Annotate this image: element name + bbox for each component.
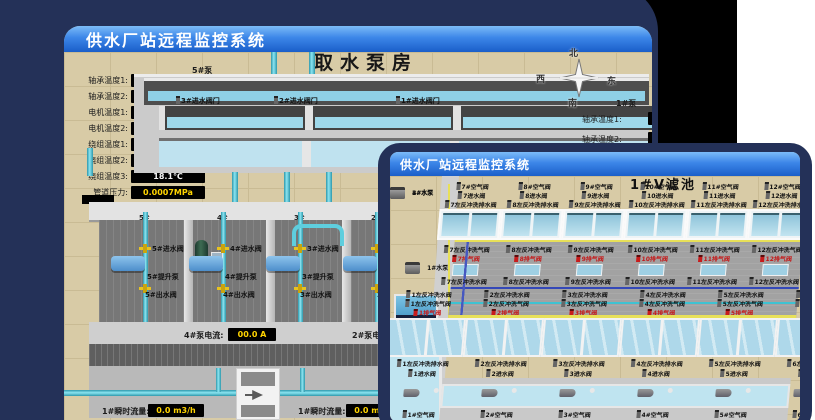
air-valve-label: 12#空气阀 xyxy=(769,184,800,191)
filter-cell[interactable] xyxy=(623,209,688,240)
valve-icon xyxy=(480,410,485,418)
front-window-titlebar: 供水厂站远程监控系统 xyxy=(390,152,800,176)
inlet-valve-label: 3进水阀 xyxy=(569,371,592,378)
drain-valve[interactable]: 5左反冲洗排水阀 xyxy=(696,359,775,368)
backwash-gas-valve[interactable]: 11左反冲洗气阀 xyxy=(684,245,747,254)
inlet-valve-label: 8进水阀 xyxy=(525,193,548,200)
vent-valve-label: 7排气阀 xyxy=(457,256,480,263)
flow-right-label: 1#瞬时流量: xyxy=(298,406,345,417)
inlet-valve-label: 5进水阀 xyxy=(725,371,748,378)
channel-pump xyxy=(771,388,800,404)
drain-valve-label: 11左反冲洗排水阀 xyxy=(696,202,747,209)
valve-icon xyxy=(702,182,707,190)
valve-icon xyxy=(764,182,769,190)
inlet-valve[interactable]: 2进水阀 xyxy=(461,369,540,378)
trough-icon xyxy=(514,264,541,276)
intake-valve-label: 2#进水阀门 xyxy=(279,97,318,105)
air-valve-label: 6#空气阀 xyxy=(797,412,800,419)
backwash-gas-valve[interactable]: 3左反冲洗气阀 xyxy=(545,299,624,308)
air-valve[interactable]: 9#空气阀 xyxy=(565,182,628,191)
air-valve[interactable]: 7#空气阀 xyxy=(441,182,504,191)
blue-pipe-line xyxy=(451,287,799,289)
wash-valve-row-bottom: 1左反冲洗水阀2左反冲洗水阀3左反冲洗水阀4左反冲洗水阀5左反冲洗水阀6左反冲洗… xyxy=(390,290,800,299)
flow-left-label: 1#瞬时流量: xyxy=(102,406,149,417)
vent-valve-label: 9排气阀 xyxy=(581,256,604,263)
pump-icon xyxy=(559,389,576,397)
backwash-pump[interactable]: 4#水泵 xyxy=(390,182,433,198)
inlet-valve[interactable]: 11进水阀 xyxy=(688,191,751,200)
air-valve[interactable]: 11#空气阀 xyxy=(689,182,752,191)
bay-pump-label: 3#提升泵 xyxy=(302,272,334,282)
bay-outlet-label: 5#出水阀 xyxy=(145,290,177,300)
backwash-water-valve[interactable]: 10左反冲洗水阀 xyxy=(619,277,682,286)
air-valve-label: 10#空气阀 xyxy=(645,184,677,191)
water xyxy=(470,213,498,236)
gas-valve-label: 11左反冲洗气阀 xyxy=(695,247,740,254)
air-valve[interactable]: 6#空气阀 xyxy=(769,410,800,419)
backwash-water-valve[interactable]: 5左反冲洗水阀 xyxy=(702,290,781,299)
backwash-gas-valve[interactable]: 2左反冲洗气阀 xyxy=(467,299,546,308)
water xyxy=(315,117,451,128)
drain-valve-row-bottom: 1左反冲洗排水阀2左反冲洗排水阀3左反冲洗排水阀4左反冲洗排水阀5左反冲洗排水阀… xyxy=(390,359,800,368)
filter-grid: 7#空气阀8#空气阀9#空气阀10#空气阀11#空气阀12#空气阀 7进水阀8进… xyxy=(439,182,800,420)
gas-valve-label: 8左反冲洗气阀 xyxy=(511,247,552,254)
scene-heading: 取水泵房 xyxy=(314,48,418,75)
channel-pump xyxy=(390,388,460,404)
trough xyxy=(620,264,683,276)
vent-valve[interactable]: 11排气阀 xyxy=(683,254,746,263)
channel-pump-row xyxy=(390,388,800,404)
pump-icon xyxy=(637,389,654,397)
pipe-stub xyxy=(326,172,332,206)
channel-pump xyxy=(693,388,772,404)
trough xyxy=(558,264,621,276)
water xyxy=(565,213,593,236)
air-valve[interactable]: 2#空气阀 xyxy=(457,410,536,419)
pump4-current-label: 4#泵电流: xyxy=(184,330,223,341)
valve-icon xyxy=(456,182,461,190)
backwash-gas-valve[interactable]: 5左反冲洗气阀 xyxy=(701,299,780,308)
intake-channel xyxy=(455,106,652,130)
filter-cells-bottom xyxy=(390,318,800,357)
vent-valve-label: 8排气阀 xyxy=(519,256,542,263)
wash-valve-label: 5左反冲洗水阀 xyxy=(723,292,764,299)
valve-icon xyxy=(558,410,563,418)
air-valve[interactable]: 10#空气阀 xyxy=(627,182,690,191)
drain-valve-label: 7左反冲洗排水阀 xyxy=(450,202,497,209)
compass-north: 北 xyxy=(569,46,578,59)
air-valve-label: 2#空气阀 xyxy=(485,412,513,419)
bay-outlet-label: 4#出水阀 xyxy=(223,290,255,300)
valve-icon xyxy=(796,290,800,298)
pump-label: 4#水泵 xyxy=(412,190,433,197)
backwash-water-valve[interactable]: 7左反冲洗水阀 xyxy=(433,277,496,286)
sensor-label: 绕组温度2: xyxy=(66,155,131,166)
inlet-valve[interactable]: 12进水阀 xyxy=(750,191,800,200)
inlet-valve-label: 12进水阀 xyxy=(771,193,798,200)
front-window-title: 供水厂站远程监控系统 xyxy=(400,156,530,173)
vent-valve[interactable]: 10排气阀 xyxy=(621,254,684,263)
air-valve-label: 3#空气阀 xyxy=(563,412,591,419)
gas-valve-label: 12左反冲洗气阀 xyxy=(757,247,800,254)
device-icon xyxy=(245,390,263,400)
pump-icon xyxy=(715,389,732,397)
backwash-water-valve[interactable]: 1左反冲洗水阀 xyxy=(390,290,469,299)
inlet-valve-label: 10进水阀 xyxy=(647,193,674,200)
drain-valve-label: 12左反冲洗排水阀 xyxy=(758,202,800,209)
gas-valve-row-bottom: 1左反冲洗气阀2左反冲洗气阀3左反冲洗气阀4左反冲洗气阀5左反冲洗气阀6左反冲洗… xyxy=(390,299,800,308)
filter-cell[interactable] xyxy=(619,318,700,357)
bay-inlet-label: 4#进水阀 xyxy=(230,244,262,254)
wash-valve-label: 2左反冲洗水阀 xyxy=(489,292,530,299)
valve-icon xyxy=(274,96,278,104)
drain-valve-label: 5左反冲洗排水阀 xyxy=(714,361,761,368)
edge-sensor-label: 轴承温度1: xyxy=(582,114,622,125)
channel-pump xyxy=(615,388,694,404)
wash-valve-label: 9左反冲洗水阀 xyxy=(570,279,611,286)
filter-window[interactable]: 供水厂站远程监控系统 1#V滤池 1#水泵 2#水泵 xyxy=(378,143,812,420)
drain-valve-label: 8左反冲洗排水阀 xyxy=(512,202,559,209)
inlet-valve-row-top: 7进水阀8进水阀9进水阀10进水阀11进水阀12进水阀 xyxy=(440,191,800,200)
water xyxy=(751,213,779,236)
pump-icon xyxy=(481,389,498,397)
inlet-valve[interactable]: 10进水阀 xyxy=(626,191,689,200)
trough-icon xyxy=(700,264,727,276)
filter-cell[interactable] xyxy=(685,209,750,240)
channel-pump xyxy=(459,388,538,404)
sensor-label: 轴承温度1: xyxy=(66,75,131,86)
filter-cell[interactable] xyxy=(390,318,466,357)
pipe-stub xyxy=(232,172,238,206)
back-window-title: 供水厂站远程监控系统 xyxy=(86,27,266,51)
filter-cell[interactable] xyxy=(437,209,502,240)
water xyxy=(532,213,560,236)
inlet-valve[interactable]: 9进水阀 xyxy=(564,191,627,200)
backwash-gas-valve[interactable]: 4左反冲洗气阀 xyxy=(623,299,702,308)
filter-cell[interactable] xyxy=(541,318,622,357)
edge-sensor-value xyxy=(648,112,652,125)
intake-valve[interactable]: 2#进水阀门 xyxy=(274,96,318,106)
air-valve-row-top: 7#空气阀8#空气阀9#空气阀10#空气阀11#空气阀12#空气阀 xyxy=(441,182,800,191)
air-valve-label: 1#空气阀 xyxy=(407,412,435,419)
drain-valve-label: 9左反冲洗排水阀 xyxy=(574,202,621,209)
float-icon xyxy=(745,388,750,393)
filter-cell[interactable] xyxy=(499,209,564,240)
backwash-gas-valve[interactable]: 1左反冲洗气阀 xyxy=(390,299,468,308)
device-panel xyxy=(241,372,275,386)
trough xyxy=(682,264,745,276)
compass-east: 东 xyxy=(607,74,616,87)
inlet-valve-icon[interactable] xyxy=(217,244,229,253)
bay-inlet-label: 5#进水阀 xyxy=(152,244,184,254)
vent-valve-label: 10排气阀 xyxy=(641,256,668,263)
intake-valve[interactable]: 1#进水阀门 xyxy=(396,96,440,106)
valve-icon xyxy=(792,410,797,418)
backwash-water-valve[interactable]: 11左反冲洗水阀 xyxy=(681,277,744,286)
channel-pump xyxy=(537,388,616,404)
drain-valve[interactable]: 10左反冲洗排水阀 xyxy=(626,200,689,209)
intake-valve-label: 1#进水阀门 xyxy=(401,97,440,105)
drain-valve[interactable]: 12左反冲洗排水阀 xyxy=(750,200,800,209)
air-valve-row-bottom: 1#空气阀2#空气阀3#空气阀4#空气阀5#空气阀6#空气阀 xyxy=(390,410,800,419)
backwash-water-valve[interactable]: 9左反冲洗水阀 xyxy=(557,277,620,286)
drain-valve-label: 6左反冲洗排水阀 xyxy=(792,361,800,368)
air-valve[interactable]: 4#空气阀 xyxy=(613,410,692,419)
intake-channel xyxy=(159,106,311,130)
gas-valve-label: 7左反冲洗气阀 xyxy=(449,247,490,254)
drain-valve[interactable]: 11左反冲洗排水阀 xyxy=(688,200,751,209)
filter-screen: 供水厂站远程监控系统 1#V滤池 1#水泵 2#水泵 xyxy=(390,152,800,420)
water xyxy=(167,117,303,128)
inlet-valve[interactable]: 8进水阀 xyxy=(502,191,565,200)
compass-west: 西 xyxy=(536,72,545,85)
wash-valve-label: 3左反冲洗水阀 xyxy=(567,292,608,299)
pump1-group-label: 1#泵 xyxy=(616,98,636,109)
air-valve[interactable]: 5#空气阀 xyxy=(691,410,770,419)
drain-valve[interactable]: 8左反冲洗排水阀 xyxy=(502,200,565,209)
water xyxy=(503,213,531,236)
backwash-water-valve[interactable]: 4左反冲洗水阀 xyxy=(624,290,703,299)
gas-valve-label: 10左反冲洗气阀 xyxy=(633,247,678,254)
pump-icon xyxy=(405,262,420,274)
drain-valve[interactable]: 2左反冲洗排水阀 xyxy=(462,359,541,368)
sensor-label: 电机温度1: xyxy=(66,107,131,118)
vent-valve-label: 11排气阀 xyxy=(703,256,730,263)
backwash-water-valve[interactable]: 2左反冲洗水阀 xyxy=(468,290,547,299)
bay-outlet-label: 3#出水阀 xyxy=(300,290,332,300)
backwash-water-valve[interactable]: 6左反冲洗水阀 xyxy=(780,290,800,299)
pump-icon[interactable] xyxy=(343,256,377,271)
vent-valve[interactable]: 12排气阀 xyxy=(745,254,800,263)
inlet-valve-label: 1进水阀 xyxy=(413,371,436,378)
inlet-valve[interactable]: 7进水阀 xyxy=(440,191,503,200)
bay-pump-label: 4#提升泵 xyxy=(225,272,257,282)
air-valve[interactable]: 12#空气阀 xyxy=(751,182,800,191)
backwash-water-valve[interactable]: 8左反冲洗水阀 xyxy=(495,277,558,286)
filter-cell[interactable] xyxy=(775,318,800,357)
water xyxy=(718,213,746,236)
wash-valve-label: 7左反冲洗水阀 xyxy=(446,279,487,286)
trough-icon xyxy=(762,264,789,276)
pipe-stub xyxy=(216,368,221,392)
valve-icon xyxy=(798,369,800,377)
vent-valve-label: 1排气阀 xyxy=(419,310,442,317)
pump-bay: 3# 3#进水阀 3#提升泵 3#出水阀 xyxy=(264,212,342,322)
air-valve-label: 4#空气阀 xyxy=(641,412,669,419)
backwash-gas-valve[interactable]: 9左反冲洗气阀 xyxy=(560,245,623,254)
inlet-valve-label: 9进水阀 xyxy=(587,193,610,200)
inlet-valve-label: 11进水阀 xyxy=(709,193,736,200)
pump-bay: 5# 5#进水阀 5#提升泵 5#出水阀 xyxy=(109,212,187,322)
drain-valve-label: 1左反冲洗排水阀 xyxy=(402,361,449,368)
gas-valve-label: 2左反冲洗气阀 xyxy=(488,301,529,308)
water xyxy=(441,213,469,236)
compass-south: 南 xyxy=(568,96,577,109)
backwash-gas-valve[interactable]: 6左反冲洗气阀 xyxy=(779,299,800,308)
inlet-valve-icon[interactable] xyxy=(294,244,306,253)
air-valve[interactable]: 3#空气阀 xyxy=(535,410,614,419)
inlet-valve-label: 2进水阀 xyxy=(491,371,514,378)
drain-valve[interactable]: 3左反冲洗排水阀 xyxy=(540,359,619,368)
inlet-valve-icon[interactable] xyxy=(139,244,151,253)
sensor-label: 轴承温度2: xyxy=(66,91,131,102)
valve-icon xyxy=(176,96,180,104)
trough-icon xyxy=(576,264,603,276)
inlet-valve[interactable]: 6进水阀 xyxy=(773,369,800,378)
filter-cell[interactable] xyxy=(463,318,544,357)
sensor-label: 绕组温度1: xyxy=(66,139,131,150)
intake-valve-label: 3#进水阀门 xyxy=(181,97,220,105)
drain-valve-label: 2左反冲洗排水阀 xyxy=(480,361,527,368)
trough-row xyxy=(434,264,800,276)
pump-bay: 4# 4#进水阀 4#提升泵 4#出水阀 xyxy=(187,212,265,322)
flow-left-value: 0.0 m3/h xyxy=(148,404,204,417)
flow-meter-device[interactable] xyxy=(236,368,280,420)
pump-icon[interactable] xyxy=(266,256,300,271)
backwash-water-valve[interactable]: 3左反冲洗水阀 xyxy=(546,290,625,299)
air-valve-label: 5#空气阀 xyxy=(719,412,747,419)
inlet-valve-label: 4进水阀 xyxy=(647,371,670,378)
drain-valve-row-top: 7左反冲洗排水阀8左反冲洗排水阀9左反冲洗排水阀10左反冲洗排水阀11左反冲洗排… xyxy=(440,200,800,209)
wash-valve-label: 8左反冲洗水阀 xyxy=(508,279,549,286)
filter-cell[interactable] xyxy=(697,318,778,357)
inlet-valve-label: 7进水阀 xyxy=(463,193,486,200)
float-icon xyxy=(433,388,438,393)
wash-valve-label: 4左反冲洗水阀 xyxy=(645,292,686,299)
float-icon xyxy=(589,388,594,393)
backwash-gas-valve[interactable]: 10左反冲洗气阀 xyxy=(622,245,685,254)
compass-icon xyxy=(559,58,599,98)
pump-icon xyxy=(390,187,405,199)
valve-icon xyxy=(396,96,400,104)
drain-valve[interactable]: 4左反冲洗排水阀 xyxy=(618,359,697,368)
valve-icon xyxy=(714,410,719,418)
drain-valve[interactable]: 1左反冲洗排水阀 xyxy=(390,359,463,368)
backwash-gas-valve[interactable]: 8左反冲洗气阀 xyxy=(498,245,561,254)
vent-valve-row-top: 7排气阀8排气阀9排气阀10排气阀11排气阀12排气阀 xyxy=(435,254,800,263)
air-valve[interactable]: 1#空气阀 xyxy=(390,410,458,419)
valve-icon xyxy=(640,182,645,190)
valve-icon xyxy=(518,182,523,190)
drain-valve[interactable]: 6左反冲洗排水阀 xyxy=(774,359,800,368)
drain-valve-label: 10左反冲洗排水阀 xyxy=(634,202,685,209)
inlet-valve[interactable]: 3进水阀 xyxy=(539,369,618,378)
wash-valve-label: 12左反冲洗水阀 xyxy=(754,279,799,286)
pump-icon[interactable] xyxy=(189,256,223,271)
water xyxy=(689,213,717,236)
trough-icon xyxy=(638,264,665,276)
backwash-water-valve[interactable]: 12左反冲洗水阀 xyxy=(743,277,800,286)
sensor-label: 绕组温度3: xyxy=(66,171,131,182)
filter-cell[interactable] xyxy=(561,209,626,240)
sensor-value: 0.0007MPa xyxy=(131,186,205,199)
wash-valve-label: 10左反冲洗水阀 xyxy=(630,279,675,286)
water xyxy=(463,117,652,128)
backwash-gas-valve[interactable]: 12左反冲洗气阀 xyxy=(746,245,800,254)
gas-valve-label: 1左反冲洗气阀 xyxy=(410,301,451,308)
float-icon xyxy=(511,388,516,393)
filter-cells-top xyxy=(437,209,800,240)
valve-icon xyxy=(402,410,407,418)
air-valve-label: 7#空气阀 xyxy=(461,184,489,191)
drain-valve[interactable]: 7左反冲洗排水阀 xyxy=(440,200,503,209)
wash-valve-label: 1左反冲洗水阀 xyxy=(411,292,452,299)
pump-icon xyxy=(793,389,800,397)
drain-valve-label: 4左反冲洗排水阀 xyxy=(636,361,683,368)
wash-valve-label: 11左反冲洗水阀 xyxy=(692,279,737,286)
sensor-label: 电机温度2: xyxy=(66,123,131,134)
basin-divider xyxy=(302,141,311,167)
trough xyxy=(496,264,559,276)
inlet-valve-row-bottom: 1进水阀2进水阀3进水阀4进水阀5进水阀6进水阀 xyxy=(390,369,800,378)
gas-valve-label: 9左反冲洗气阀 xyxy=(573,247,614,254)
air-valve-label: 11#空气阀 xyxy=(707,184,739,191)
drain-valve-label: 3左反冲洗排水阀 xyxy=(558,361,605,368)
valve-icon xyxy=(636,410,641,418)
water xyxy=(594,213,622,236)
valve-icon xyxy=(580,182,585,190)
filter-cell[interactable] xyxy=(747,209,800,240)
drain-valve[interactable]: 9左反冲洗排水阀 xyxy=(564,200,627,209)
intake-valve[interactable]: 3#进水阀门 xyxy=(176,96,220,106)
wash-valve-row-top: 7左反冲洗水阀8左反冲洗水阀9左反冲洗水阀10左反冲洗水阀11左反冲洗水阀12左… xyxy=(433,277,800,286)
air-valve[interactable]: 8#空气阀 xyxy=(503,182,566,191)
gas-valve-row-top: 7左反冲洗气阀8左反冲洗气阀9左反冲洗气阀10左反冲洗气阀11左反冲洗气阀12左… xyxy=(436,245,800,254)
vent-valve[interactable]: 9排气阀 xyxy=(559,254,622,263)
pump-icon xyxy=(403,389,420,397)
desktop: 供水厂站远程监控系统 取水泵房 5#泵 轴承温度1: 100.0℃ 轴承温度2:… xyxy=(0,0,815,420)
inlet-valve[interactable]: 5进水阀 xyxy=(695,369,774,378)
pump-icon[interactable] xyxy=(111,256,145,271)
inlet-valve[interactable]: 1进水阀 xyxy=(390,369,462,378)
filter-scene: 1#V滤池 1#水泵 2#水泵 xyxy=(390,176,800,420)
pipe-stub xyxy=(284,172,290,206)
bay-pump-label: 5#提升泵 xyxy=(147,272,179,282)
device-panel xyxy=(241,405,275,417)
water xyxy=(780,213,800,236)
water xyxy=(627,213,655,236)
trough xyxy=(744,264,800,276)
pipe-stub xyxy=(87,148,93,176)
u-pipe xyxy=(292,224,344,246)
gas-valve-label: 4左反冲洗气阀 xyxy=(644,301,685,308)
air-valve-label: 9#空气阀 xyxy=(585,184,613,191)
water xyxy=(656,213,684,236)
air-valve-label: 8#空气阀 xyxy=(523,184,551,191)
bay-inlet-label: 3#进水阀 xyxy=(307,244,339,254)
pipe-stub xyxy=(300,368,305,392)
gas-valve-label: 5左反冲洗气阀 xyxy=(722,301,763,308)
intake-channel xyxy=(307,106,459,130)
float-icon xyxy=(667,388,672,393)
vent-valve-label: 12排气阀 xyxy=(765,256,792,263)
inlet-valve[interactable]: 4进水阀 xyxy=(617,369,696,378)
pump4-current-value: 00.0 A xyxy=(228,328,276,341)
gas-valve-label: 3左反冲洗气阀 xyxy=(566,301,607,308)
vent-valve[interactable]: 8排气阀 xyxy=(497,254,560,263)
